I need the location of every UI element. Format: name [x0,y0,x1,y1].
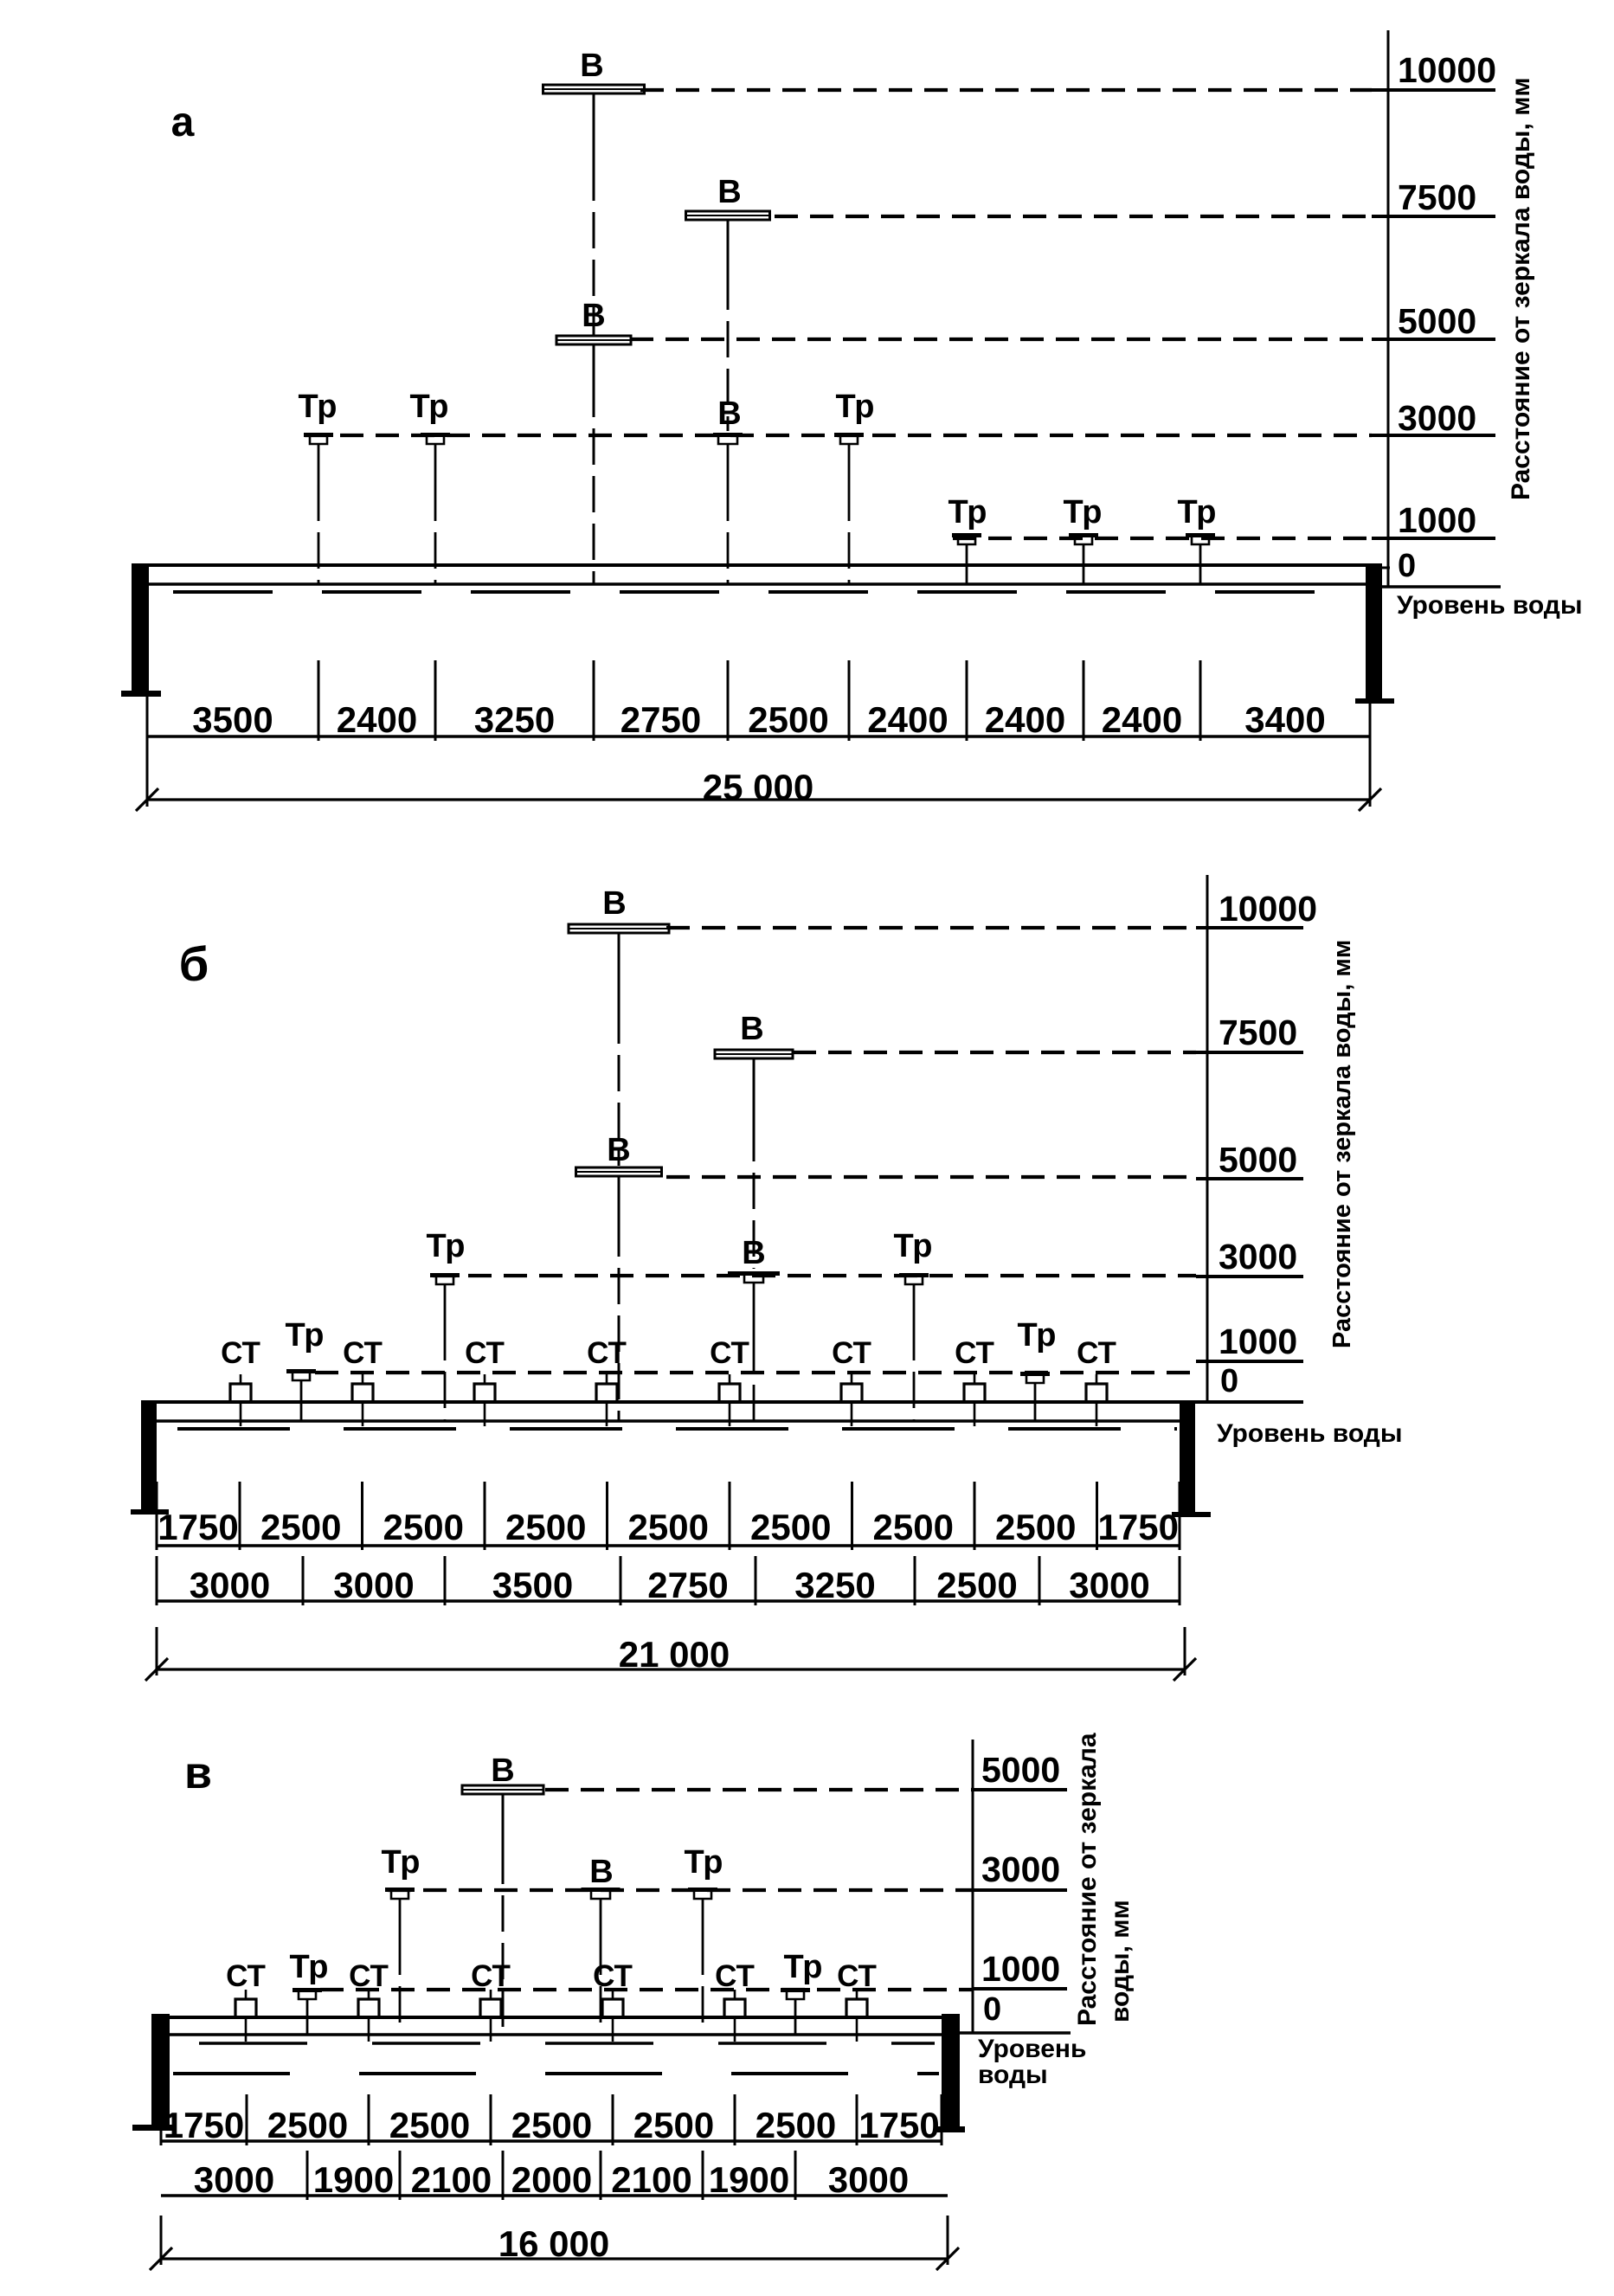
svg-text:Расстояние от зеркала воды, мм: Расстояние от зеркала воды, мм [1507,77,1535,500]
svg-text:2500: 2500 [873,1507,954,1547]
svg-text:2400: 2400 [1102,699,1182,740]
svg-text:2500: 2500 [995,1507,1076,1547]
svg-text:2500: 2500 [511,2105,592,2145]
svg-text:в: в [184,1748,212,1798]
svg-text:21 000: 21 000 [619,1634,730,1675]
svg-text:25 000: 25 000 [703,767,813,807]
svg-text:2500: 2500 [936,1565,1017,1605]
svg-text:3400: 3400 [1244,699,1325,740]
svg-text:7500: 7500 [1219,1013,1297,1052]
svg-text:СТ: СТ [349,1959,389,1993]
svg-text:3250: 3250 [474,699,555,740]
svg-text:3000: 3000 [1219,1237,1297,1277]
svg-text:СТ: СТ [1077,1336,1116,1370]
svg-text:16 000: 16 000 [498,2223,609,2264]
svg-text:Расстояние от зеркала: Расстояние от зеркала [1073,1733,1102,2026]
svg-text:Тр: Тр [427,1228,466,1264]
svg-text:Расстояние от зеркала воды, мм: Расстояние от зеркала воды, мм [1328,940,1356,1348]
svg-text:Тр: Тр [836,389,875,425]
svg-text:Тр: Тр [382,1844,421,1881]
svg-text:1750: 1750 [1098,1507,1179,1547]
svg-text:В: В [742,1235,765,1271]
svg-text:3000: 3000 [828,2159,909,2200]
svg-text:Тр: Тр [784,1949,823,1985]
svg-text:1000: 1000 [981,1949,1060,1989]
svg-text:2500: 2500 [748,699,828,740]
svg-text:В: В [602,885,626,922]
svg-text:1900: 1900 [709,2159,789,2200]
svg-text:СТ: СТ [587,1336,627,1370]
svg-text:В: В [491,1753,514,1789]
svg-text:1750: 1750 [858,2105,939,2145]
svg-text:2750: 2750 [621,699,701,740]
svg-text:2500: 2500 [756,2105,836,2145]
svg-text:СТ: СТ [226,1959,266,1993]
svg-text:Тр: Тр [894,1228,933,1264]
svg-text:СТ: СТ [955,1336,994,1370]
svg-text:СТ: СТ [471,1959,511,1993]
svg-text:10000: 10000 [1219,889,1317,929]
svg-text:В: В [717,174,741,210]
svg-text:3000: 3000 [981,1849,1060,1889]
svg-text:б: б [179,936,209,991]
svg-text:3000: 3000 [333,1565,414,1605]
svg-text:1000: 1000 [1398,500,1476,540]
svg-text:СТ: СТ [465,1336,505,1370]
svg-text:1750: 1750 [164,2105,244,2145]
svg-text:Уровень: Уровень [978,2035,1086,2063]
svg-text:воды: воды [978,2061,1048,2089]
svg-text:3000: 3000 [194,2159,274,2200]
svg-text:2500: 2500 [633,2105,714,2145]
svg-text:В: В [580,48,603,84]
svg-text:0: 0 [1220,1363,1238,1399]
svg-text:0: 0 [983,1991,1001,2028]
svg-text:Тр: Тр [286,1317,325,1354]
svg-text:2500: 2500 [628,1507,709,1547]
svg-text:СТ: СТ [343,1336,383,1370]
svg-text:Тр: Тр [685,1844,723,1881]
svg-text:1750: 1750 [158,1507,238,1547]
svg-text:3250: 3250 [794,1565,875,1605]
svg-text:СТ: СТ [837,1959,877,1993]
svg-text:Тр: Тр [299,389,338,425]
svg-text:Тр: Тр [948,494,987,531]
svg-text:В: В [717,396,741,432]
svg-text:Тр: Тр [1178,494,1217,531]
svg-text:2500: 2500 [505,1507,586,1547]
svg-text:2400: 2400 [867,699,948,740]
svg-text:Уровень воды: Уровень воды [1397,591,1582,620]
svg-text:1900: 1900 [313,2159,394,2200]
svg-text:СТ: СТ [710,1336,749,1370]
svg-text:3500: 3500 [492,1565,573,1605]
svg-text:3000: 3000 [1069,1565,1149,1605]
svg-text:Тр: Тр [410,389,449,425]
svg-text:3000: 3000 [1398,398,1476,438]
svg-text:2400: 2400 [337,699,417,740]
svg-text:Тр: Тр [290,1949,329,1985]
svg-text:СТ: СТ [715,1959,755,1993]
svg-text:7500: 7500 [1398,177,1476,217]
svg-text:2500: 2500 [750,1507,831,1547]
svg-text:5000: 5000 [981,1750,1060,1790]
svg-text:5000: 5000 [1398,301,1476,341]
svg-text:В: В [582,298,605,334]
svg-text:а: а [171,100,195,145]
svg-text:2750: 2750 [647,1565,728,1605]
svg-text:В: В [740,1011,763,1047]
svg-text:СТ: СТ [832,1336,871,1370]
svg-text:2100: 2100 [411,2159,492,2200]
svg-text:2000: 2000 [511,2159,592,2200]
svg-text:2100: 2100 [611,2159,691,2200]
svg-text:Тр: Тр [1018,1317,1057,1354]
svg-text:2500: 2500 [260,1507,341,1547]
svg-text:2500: 2500 [389,2105,470,2145]
svg-text:СТ: СТ [221,1336,260,1370]
svg-text:воды, мм: воды, мм [1106,1900,1135,2023]
svg-text:Уровень воды: Уровень воды [1217,1419,1402,1448]
svg-text:5000: 5000 [1219,1140,1297,1180]
svg-text:В: В [607,1132,630,1168]
svg-text:СТ: СТ [593,1959,633,1993]
svg-text:2400: 2400 [985,699,1065,740]
svg-text:2500: 2500 [267,2105,348,2145]
svg-text:3000: 3000 [190,1565,270,1605]
svg-text:Тр: Тр [1064,494,1103,531]
svg-text:2500: 2500 [383,1507,464,1547]
svg-text:1000: 1000 [1219,1322,1297,1361]
svg-text:В: В [589,1854,613,1890]
svg-text:10000: 10000 [1398,50,1496,90]
svg-text:3500: 3500 [192,699,273,740]
svg-text:0: 0 [1398,548,1416,584]
